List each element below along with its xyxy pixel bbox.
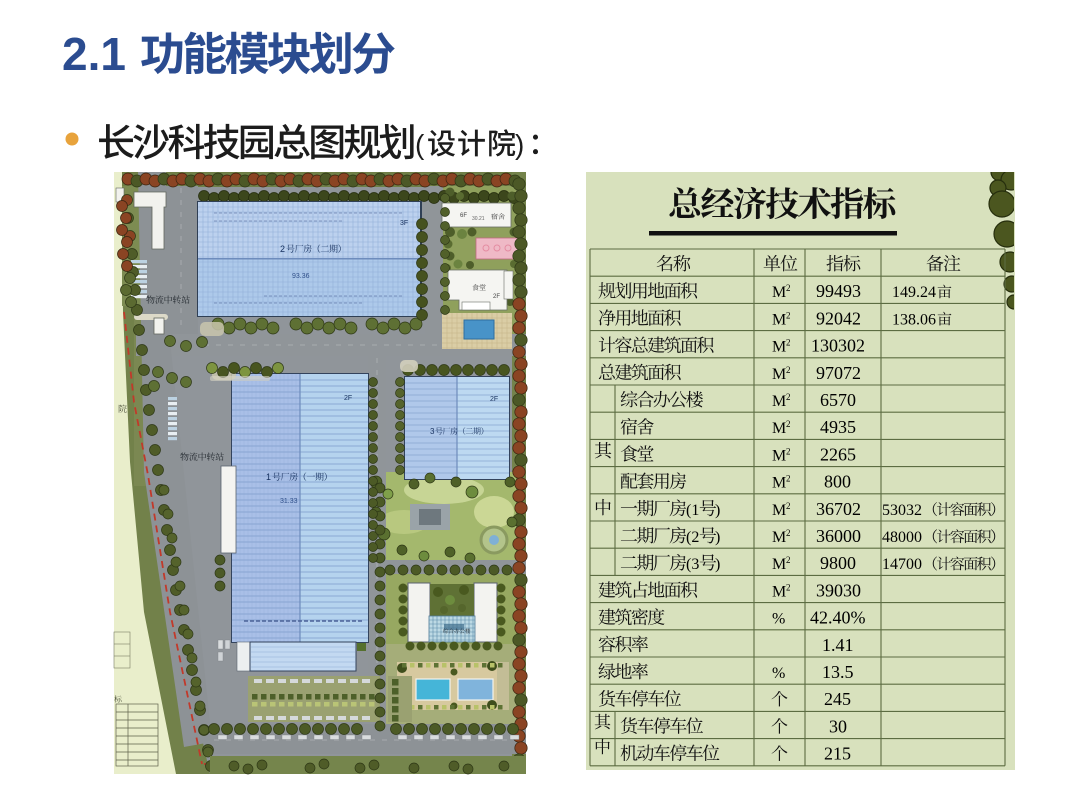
svg-text:36000: 36000: [816, 526, 861, 546]
svg-text:53032: 53032: [882, 502, 922, 519]
svg-text:M: M: [772, 420, 786, 437]
svg-text:31.33: 31.33: [280, 498, 298, 505]
svg-text:138.06: 138.06: [892, 311, 936, 328]
svg-text:2: 2: [786, 528, 791, 538]
svg-text:92042: 92042: [816, 308, 861, 328]
svg-text:97072: 97072: [816, 363, 861, 383]
svg-text:36702: 36702: [816, 499, 861, 519]
svg-text:2: 2: [786, 365, 791, 375]
svg-text:): ): [715, 529, 720, 546]
svg-text:): ): [715, 556, 720, 573]
svg-text:30.21: 30.21: [472, 216, 485, 222]
svg-text:2F: 2F: [490, 396, 498, 403]
svg-text:M: M: [772, 284, 786, 301]
svg-text:(: (: [415, 129, 425, 160]
svg-text:14700: 14700: [882, 556, 922, 573]
svg-text:2.1: 2.1: [62, 28, 126, 80]
svg-text:1.41: 1.41: [822, 635, 854, 655]
svg-text:48000: 48000: [882, 529, 922, 546]
svg-text:2: 2: [786, 501, 791, 511]
svg-text:2: 2: [280, 244, 285, 254]
svg-text:99493: 99493: [816, 281, 861, 301]
svg-text:2265: 2265: [820, 444, 856, 464]
svg-text:M: M: [772, 311, 786, 328]
svg-text:%: %: [772, 611, 785, 628]
svg-text:149.24: 149.24: [892, 284, 936, 301]
svg-text:): ): [515, 129, 524, 160]
svg-text:6F: 6F: [460, 213, 467, 219]
svg-text:M: M: [772, 447, 786, 464]
svg-text:2F: 2F: [493, 294, 500, 300]
svg-text:2: 2: [786, 582, 791, 592]
svg-text:(2: (2: [686, 529, 699, 546]
svg-text:6570: 6570: [820, 390, 856, 410]
svg-text:30: 30: [829, 716, 847, 736]
svg-text:M: M: [772, 366, 786, 383]
svg-text:800: 800: [824, 472, 851, 492]
svg-text:2: 2: [786, 392, 791, 402]
svg-text:2: 2: [786, 446, 791, 456]
svg-text:2: 2: [786, 419, 791, 429]
svg-text:3F: 3F: [400, 220, 408, 227]
svg-text:215: 215: [824, 744, 851, 764]
svg-text:2F: 2F: [344, 395, 352, 402]
svg-text:2: 2: [786, 310, 791, 320]
svg-text:M: M: [772, 502, 786, 519]
svg-text:(3: (3: [686, 556, 699, 573]
svg-text:M: M: [772, 339, 786, 356]
svg-text:2: 2: [786, 283, 791, 293]
svg-text:39030: 39030: [816, 580, 861, 600]
svg-text:2: 2: [786, 338, 791, 348]
svg-text:2: 2: [786, 555, 791, 565]
svg-text:245: 245: [824, 689, 851, 709]
svg-text:130302: 130302: [811, 336, 865, 356]
svg-text:M: M: [772, 583, 786, 600]
svg-text:93.36: 93.36: [292, 273, 310, 280]
svg-text:%: %: [772, 665, 785, 682]
svg-text:): ): [715, 502, 720, 519]
svg-text:4935: 4935: [820, 417, 856, 437]
svg-text:13.5: 13.5: [822, 662, 854, 682]
svg-text:2: 2: [786, 474, 791, 484]
svg-text:9800: 9800: [820, 553, 856, 573]
svg-text:M: M: [772, 393, 786, 410]
svg-text:42.40%: 42.40%: [810, 608, 866, 628]
svg-text:M: M: [772, 475, 786, 492]
svg-text:M: M: [772, 556, 786, 573]
svg-text:3: 3: [430, 427, 435, 436]
svg-text:1: 1: [266, 472, 271, 482]
svg-text:(1: (1: [686, 502, 699, 519]
svg-text:M: M: [772, 529, 786, 546]
